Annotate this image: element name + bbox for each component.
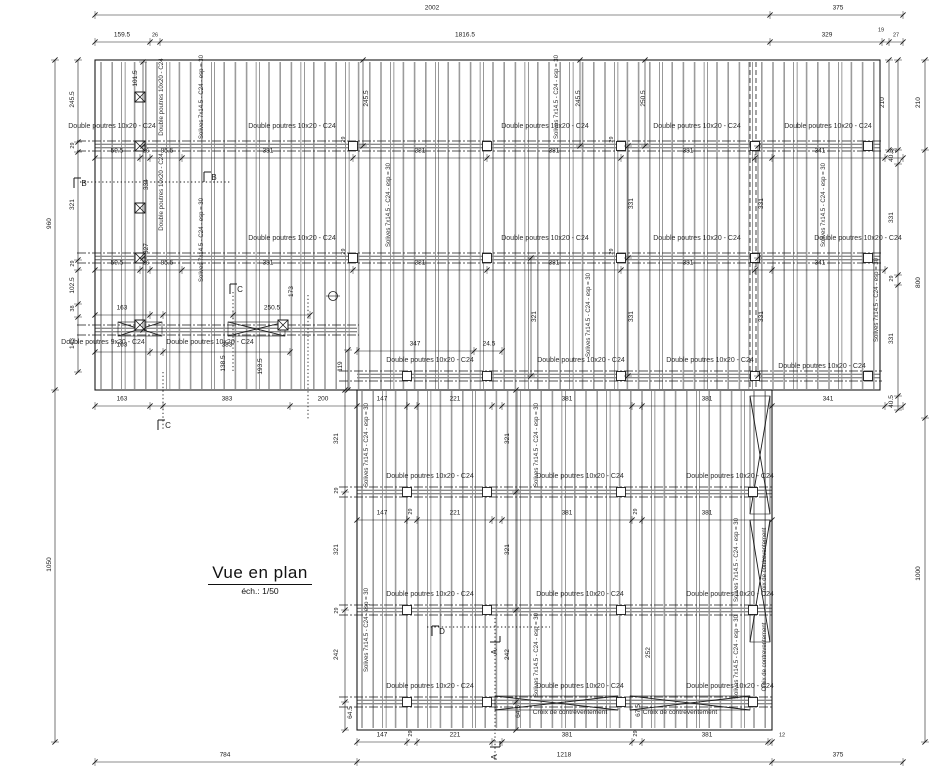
section-marker-letter: A [490, 649, 499, 655]
dimension-text: 242 [333, 649, 340, 660]
dimension-text: 375 [833, 752, 844, 759]
dimension-text: 381 [562, 510, 573, 517]
double-beam-label: Double poutres 10x20 - C24 [386, 591, 474, 598]
dimension-text: 381 [683, 148, 694, 155]
bracing-label: Croix de contreventement [533, 709, 608, 716]
dimension-text: 250.5 [640, 90, 647, 107]
dimension-text: 119 [337, 361, 344, 372]
joist-label-vertical: Solives 7x14.5 - C24 - esp = 30 [821, 162, 827, 247]
dimension-text: 29 [609, 248, 615, 254]
dimension-text: 245.5 [363, 90, 370, 107]
dimension-text: 960 [46, 218, 53, 229]
dimension-text: 26 [143, 149, 149, 155]
dimension-text: 40.5 [888, 395, 895, 408]
joist-label-vertical: Solives 7x14.5 - C24 - esp = 30 [534, 402, 540, 487]
double-beam-label: Double poutres 10x20 - C24 [537, 357, 625, 364]
dimension-text: 321 [69, 199, 76, 210]
bracing-label-vertical: Croix de contreventement [762, 622, 768, 691]
dimension-text: 29 [341, 136, 347, 142]
double-beam-label: Double poutres 10x20 - C24 [686, 591, 774, 598]
dimension-text: 29 [341, 248, 347, 254]
dimension-text: 210 [879, 97, 886, 108]
dimension-text: 64.5 [347, 706, 354, 719]
post-square [749, 606, 758, 615]
dimension-text: 29 [408, 730, 414, 736]
dimension-text: 163 [117, 396, 128, 403]
dimension-text: 29 [633, 730, 639, 736]
dimension-text: 40.5 [888, 149, 895, 162]
dimension-text: 163 [117, 305, 128, 312]
dimension-text: 38 [70, 305, 76, 311]
dimension-text: 321 [504, 433, 511, 444]
dimension-text: 331 [888, 212, 895, 223]
dimension-text: 250.5 [264, 305, 281, 312]
post-square [749, 698, 758, 707]
dimension-text: 24.5 [483, 341, 496, 348]
dimension-text: 381 [549, 260, 560, 267]
dimension-text: 147 [377, 732, 388, 739]
double-beam-label: Double poutres 10x20 - C24 [68, 123, 156, 130]
dimension-text: 347 [410, 341, 421, 348]
drawing-scale-note: éch.: 1/50 [185, 586, 335, 596]
post-square [403, 372, 412, 381]
double-beam-label: Double poutres 10x20 - C24 [686, 683, 774, 690]
dimension-text: 381 [702, 732, 713, 739]
dimension-text: 321 [531, 311, 538, 322]
dimension-text: 200 [318, 396, 329, 403]
dimension-text: 147 [377, 510, 388, 517]
joist-label-vertical: Solives 7x14.5 - C24 - esp = 30 [586, 272, 592, 357]
dimension-text: 321 [333, 544, 340, 555]
double-beam-label: Double poutres 10x20 - C24 [814, 235, 902, 242]
dimension-text: 26 [152, 33, 158, 39]
dimension-text: 26 [143, 261, 149, 267]
dimension-text: 242 [504, 649, 511, 660]
dimension-text: 381 [263, 260, 274, 267]
dimension-text: 381 [683, 260, 694, 267]
dimension-text: 59.5 [111, 148, 124, 155]
post-square [483, 606, 492, 615]
drawing-title: Vue en plan [208, 563, 312, 585]
double-beam-9x20-label: Double poutres 9x20 - C24 [61, 339, 145, 346]
dimension-text: 381 [562, 732, 573, 739]
joist-label-vertical: Solives 7x14.5 - C24 - esp = 30 [199, 197, 205, 282]
dimension-text: 321 [504, 544, 511, 555]
joist-label-vertical: Solives 7x14.5 - C24 - esp = 30 [734, 614, 740, 699]
dimension-text: 381 [702, 510, 713, 517]
dimension-text: 29 [609, 136, 615, 142]
dimension-text: 329 [822, 32, 833, 39]
dimension-text: 138.5 [220, 355, 227, 372]
dimension-text: 245.5 [575, 90, 582, 107]
joist-label-vertical: Solives 7x14.5 - C24 - esp = 30 [734, 517, 740, 602]
joist-label-vertical: Solives 7x14.5 - C24 - esp = 30 [386, 162, 392, 247]
post-square [483, 254, 492, 263]
double-beam-label: Double poutres 10x20 - C24 [386, 473, 474, 480]
post-square [349, 142, 358, 151]
joist-label-vertical: Solives 7x14.5 - C24 - esp = 30 [534, 612, 540, 697]
dimension-text: 334 [143, 179, 150, 190]
post-square [864, 142, 873, 151]
dimension-text: 1000 [915, 566, 922, 581]
dimension-text: 381 [263, 148, 274, 155]
double-beam-label: Double poutres 10x20 - C24 [166, 339, 254, 346]
dimension-text: 341 [823, 396, 834, 403]
double-beam-label-vertical: Double poutres 10x20 - C24 [158, 153, 165, 231]
double-beam-label: Double poutres 10x20 - C24 [536, 591, 624, 598]
post-square [349, 254, 358, 263]
dimension-text: 321 [333, 433, 340, 444]
post-square [864, 372, 873, 381]
double-beam-label: Double poutres 10x20 - C24 [653, 235, 741, 242]
dimension-text: 29 [70, 142, 76, 148]
dimension-text: 159.5 [114, 32, 131, 39]
double-beam-label: Double poutres 10x20 - C24 [386, 357, 474, 364]
dimension-text: 29 [334, 607, 340, 613]
joist-label-vertical: Solives 7x14.5 - C24 - esp = 30 [199, 54, 205, 139]
dimension-text: 85.5 [161, 260, 174, 267]
double-beam-label: Double poutres 10x20 - C24 [536, 473, 624, 480]
dimension-text: 27 [893, 33, 899, 39]
dimension-text: 341 [815, 148, 826, 155]
section-marker-letter: A [490, 754, 499, 760]
dimension-text: 193.5 [257, 358, 264, 375]
dimension-text: 210 [915, 97, 922, 108]
dimension-text: 331 [758, 311, 765, 322]
floor-plan-canvas: 2002375159.5261816.5329192759.52685.5381… [0, 0, 937, 779]
dimension-text: 29 [633, 508, 639, 514]
double-beam-label: Double poutres 10x20 - C24 [248, 123, 336, 130]
dimension-text: 800 [915, 277, 922, 288]
post-square [483, 698, 492, 707]
post-square [483, 488, 492, 497]
dimension-text: 29 [889, 275, 895, 281]
dimension-text: 221 [450, 732, 461, 739]
bracing-label: Croix de contreventement [643, 709, 718, 716]
dimension-text: 331 [758, 198, 765, 209]
double-beam-label: Double poutres 10x20 - C24 [501, 235, 589, 242]
dimension-text: 67.5 [635, 704, 642, 717]
title-block: Vue en plan éch.: 1/50 [185, 563, 335, 596]
double-beam-label: Double poutres 10x20 - C24 [778, 363, 866, 370]
double-beam-label: Double poutres 10x20 - C24 [784, 123, 872, 130]
dimension-text: 101.5 [132, 70, 139, 87]
double-beam-label: Double poutres 10x20 - C24 [386, 683, 474, 690]
dimension-text: 381 [415, 148, 426, 155]
dimension-text: 29 [408, 508, 414, 514]
section-marker-letter: D [439, 627, 445, 636]
double-beam-label-vertical: Double poutres 10x20 - C24 [158, 58, 165, 136]
post-square [617, 606, 626, 615]
dimension-text: 381 [549, 148, 560, 155]
double-beam-label: Double poutres 10x20 - C24 [501, 123, 589, 130]
dimension-text: 173 [288, 286, 295, 297]
dimension-text: 327 [143, 243, 150, 254]
plan-drawing: 2002375159.5261816.5329192759.52685.5381… [0, 0, 937, 779]
dimension-text: 375 [833, 5, 844, 12]
dimension-text: 1816.5 [455, 32, 475, 39]
post-square [617, 488, 626, 497]
dimension-text: 12 [779, 733, 785, 739]
dimension-text: 221 [450, 510, 461, 517]
dimension-text: 381 [702, 396, 713, 403]
dimension-text: 59.5 [111, 260, 124, 267]
section-marker-letter: C [237, 285, 243, 294]
dimension-text: 245.5 [69, 91, 76, 108]
double-beam-label: Double poutres 10x20 - C24 [248, 235, 336, 242]
joist-label-vertical: Solives 7x14.5 - C24 - esp = 30 [554, 54, 560, 139]
post-square [403, 488, 412, 497]
double-beam-label: Double poutres 10x20 - C24 [686, 473, 774, 480]
dimension-text: 64.5 [515, 705, 522, 718]
bracing-label-vertical: Croix de contreventement [762, 527, 768, 596]
section-marker-letter: C [165, 421, 171, 430]
dimension-text: 784 [220, 752, 231, 759]
dimension-text: 29 [334, 487, 340, 493]
section-marker-letter: B [211, 173, 216, 182]
dimension-text: 331 [628, 311, 635, 322]
post-square [483, 142, 492, 151]
dimension-text: 1218 [557, 752, 572, 759]
dimension-text: 147 [377, 396, 388, 403]
dimension-text: 331 [888, 333, 895, 344]
joist-label-vertical: Solives 7x14.5 - C24 - esp = 30 [874, 257, 880, 342]
section-marker-letter: B [81, 179, 86, 188]
dimension-text: 341 [815, 260, 826, 267]
post-square [403, 698, 412, 707]
dimension-text: 381 [415, 260, 426, 267]
dimension-text: 331 [628, 198, 635, 209]
dimension-text: 29 [70, 260, 76, 266]
post-square [403, 606, 412, 615]
double-beam-label: Double poutres 10x20 - C24 [666, 357, 754, 364]
post-square [483, 372, 492, 381]
dimension-text: 221 [450, 396, 461, 403]
post-square [749, 488, 758, 497]
dimension-text: 383 [222, 396, 233, 403]
dimension-text: 102.5 [69, 277, 76, 294]
dimension-text: 19 [878, 28, 884, 34]
post-square [864, 254, 873, 263]
joist-label-vertical: Solives 7x14.5 - C24 - esp = 30 [364, 587, 370, 672]
double-beam-label: Double poutres 10x20 - C24 [653, 123, 741, 130]
dimension-text: 381 [562, 396, 573, 403]
dimension-text: 2002 [425, 5, 440, 12]
dimension-text: 1050 [46, 557, 53, 572]
double-beam-label: Double poutres 10x20 - C24 [536, 683, 624, 690]
joist-label-vertical: Solives 7x14.5 - C24 - esp = 30 [364, 402, 370, 487]
post-square [617, 698, 626, 707]
dimension-text: 252 [645, 647, 652, 658]
